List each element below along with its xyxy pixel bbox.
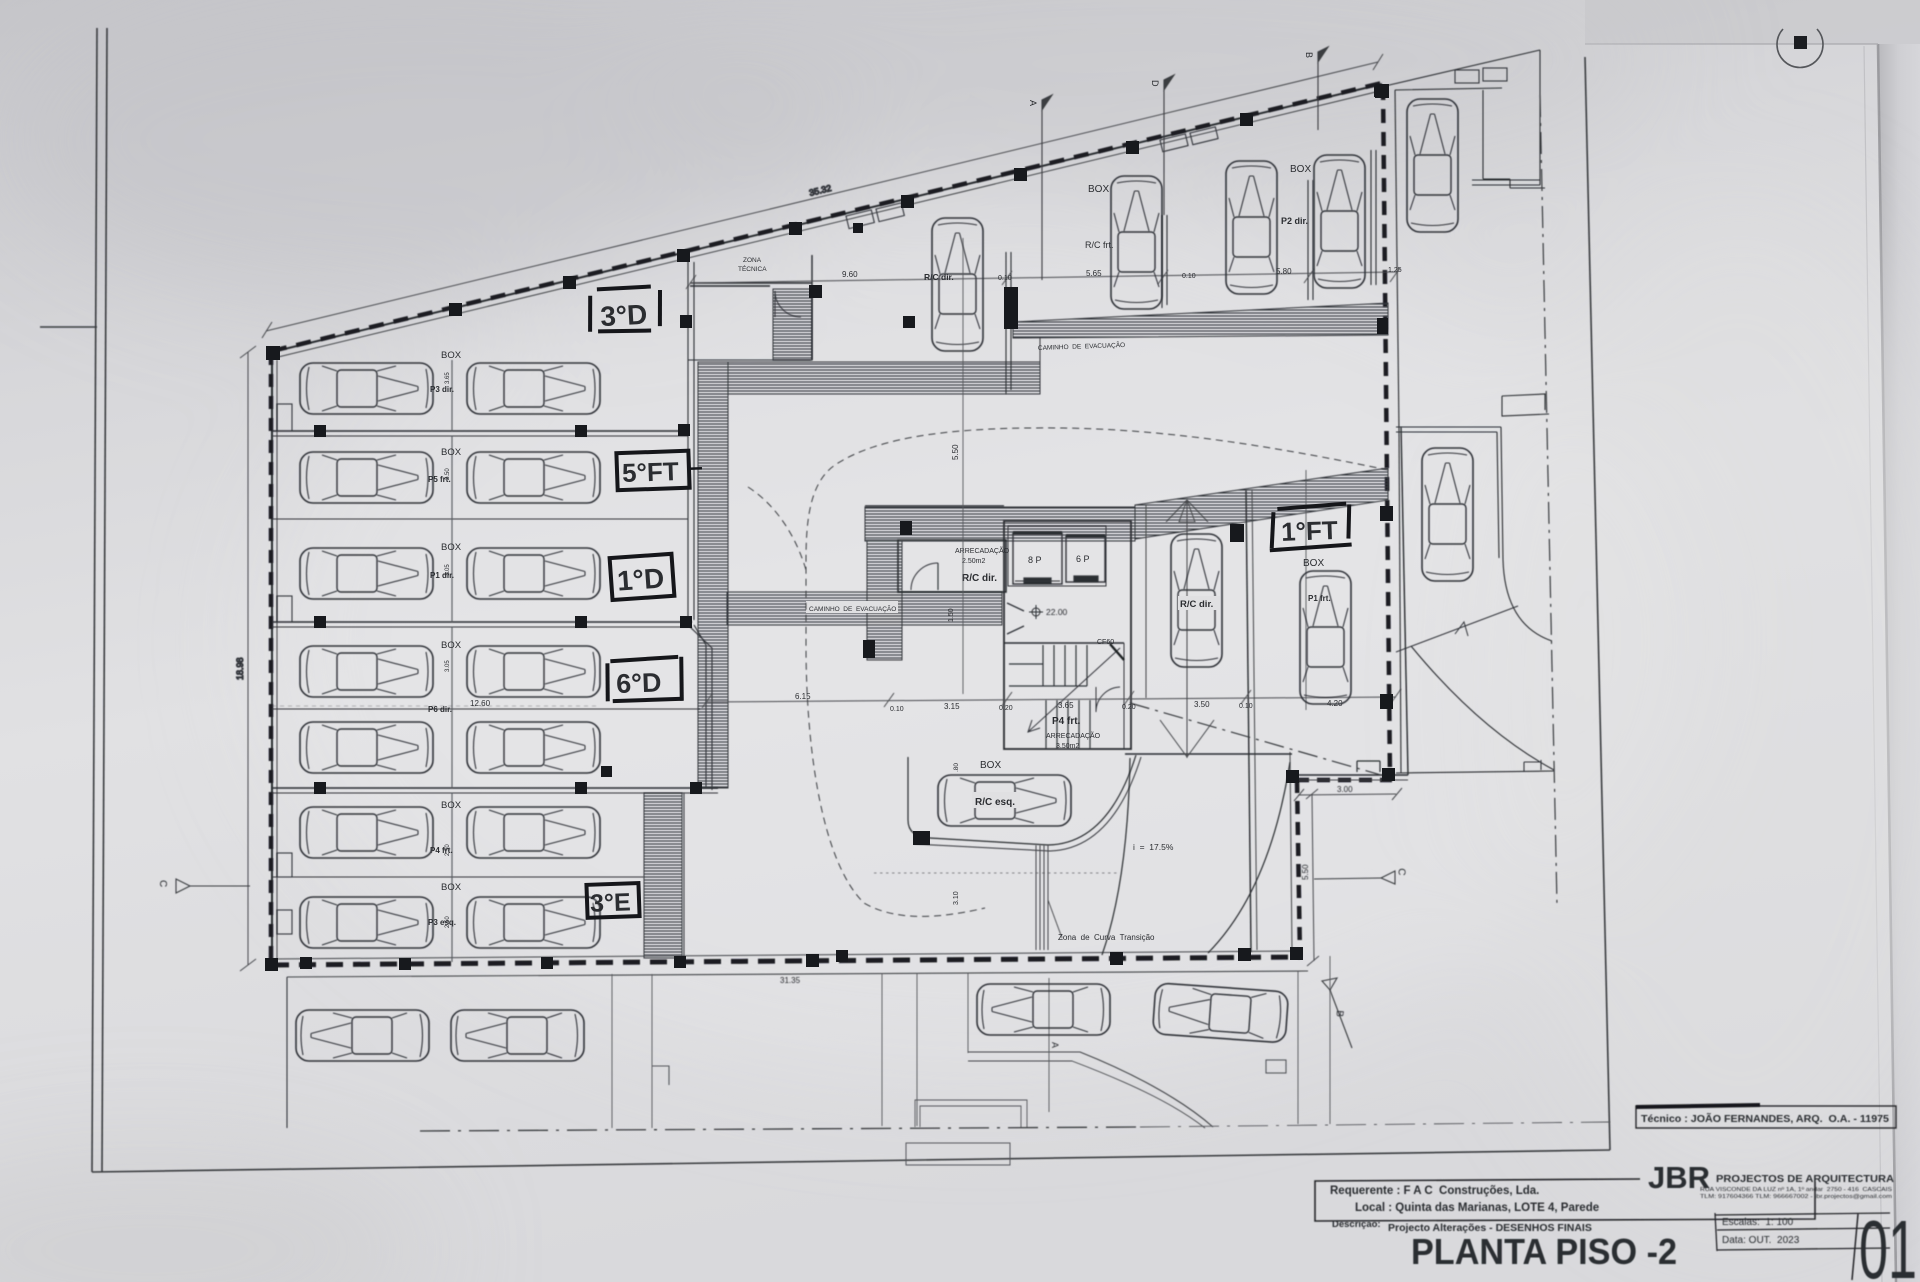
svg-text:5.65: 5.65 [1086,269,1102,278]
svg-text:2.50: 2.50 [445,916,451,928]
svg-text:3.50: 3.50 [1194,700,1210,709]
svg-text:3.15: 3.15 [944,702,960,711]
svg-text:B: B [1333,1010,1345,1018]
svg-text:PROJECTOS DE ARQUITECTURA: PROJECTOS DE ARQUITECTURA [1716,1174,1894,1185]
svg-text:R/C esq.: R/C esq. [975,797,1015,808]
svg-text:B: B [1304,52,1314,58]
svg-text:D: D [1150,80,1160,87]
svg-text:BOX: BOX [441,800,462,811]
svg-text:C: C [157,880,168,887]
svg-text:C: C [1395,868,1407,876]
svg-text:BOX: BOX [441,882,462,893]
svg-text:TÉCNICA: TÉCNICA [738,264,767,273]
svg-text:BOX: BOX [980,760,1001,771]
svg-text:P4 frt.: P4 frt. [1052,716,1081,727]
svg-text:R/C dir.: R/C dir. [962,573,997,584]
svg-text:5.80: 5.80 [1276,267,1292,276]
svg-text:3.00: 3.00 [1337,785,1353,794]
svg-text:6 P: 6 P [1076,554,1090,564]
svg-text:A: A [1028,100,1038,106]
svg-text:12.60: 12.60 [470,699,491,708]
svg-text:P1 frt.: P1 frt. [1308,594,1331,603]
svg-text:ZONA: ZONA [743,257,762,264]
svg-text:R/C dir.: R/C dir. [1180,599,1213,610]
svg-text:BOX: BOX [441,447,462,458]
svg-text:3.05: 3.05 [445,660,451,672]
svg-text:1.25: 1.25 [1388,267,1402,274]
svg-text:3°D: 3°D [600,299,649,332]
svg-text:Zona de Curva Transição: Zona de Curva Transição [1058,933,1155,942]
svg-text:0.20: 0.20 [999,705,1013,712]
svg-text:BOX: BOX [441,542,462,553]
svg-text:0.10: 0.10 [890,706,904,713]
svg-text:0.10: 0.10 [1182,273,1196,280]
svg-text:3.10: 3.10 [953,891,960,905]
svg-text:8 P: 8 P [1028,555,1042,565]
svg-text:BOX: BOX [1303,558,1324,569]
svg-text:.80: .80 [953,763,960,772]
svg-text:Data: OUT. 2023: Data: OUT. 2023 [1722,1235,1800,1246]
svg-text:PLANTA PISO -2: PLANTA PISO -2 [1411,1231,1677,1272]
svg-text:5°FT: 5°FT [622,456,680,488]
svg-text:18.98: 18.98 [235,657,245,680]
svg-text:Descrição:: Descrição: [1332,1219,1381,1230]
svg-text:CAMINHO DE EVACUAÇÃO: CAMINHO DE EVACUAÇÃO [809,604,896,613]
svg-text:1.50: 1.50 [948,608,955,622]
svg-text:Escalas: 1: 100: Escalas: 1: 100 [1722,1217,1794,1228]
svg-text:5.50: 5.50 [951,444,960,460]
svg-text:3.05: 3.05 [445,564,451,576]
svg-text:31.35: 31.35 [780,976,801,985]
svg-text:2.50: 2.50 [445,468,451,480]
svg-text:5.50: 5.50 [1301,864,1310,880]
svg-text:6.15: 6.15 [795,692,811,701]
svg-text:0.20: 0.20 [1122,704,1136,711]
svg-text:A: A [1050,1042,1060,1048]
svg-text:RUA VISCONDE DA LUZ nº 1A, 1º: RUA VISCONDE DA LUZ nº 1A, 1º andar 2750… [1700,1186,1892,1193]
svg-text:BOX: BOX [1088,184,1109,195]
svg-text:9.60: 9.60 [842,270,858,279]
svg-text:22.00: 22.00 [1046,607,1068,617]
svg-text:Local : Quinta das Marianas, L: Local : Quinta das Marianas, LOTE 4, Par… [1355,1202,1599,1214]
svg-text:1°FT: 1°FT [1281,515,1339,547]
svg-text:Técnico : JOÃO FERNANDES, ARQ.: Técnico : JOÃO FERNANDES, ARQ. O.A. - 11… [1641,1112,1889,1125]
svg-text:i = 17.5%: i = 17.5% [1133,842,1174,852]
svg-text:ARRECADAÇÃO: ARRECADAÇÃO [1046,731,1101,740]
svg-text:0.10: 0.10 [998,275,1012,282]
svg-text:3.65: 3.65 [445,372,451,384]
svg-text:3.50m2: 3.50m2 [1056,743,1079,750]
svg-text:01: 01 [1859,1203,1917,1282]
svg-text:BOX: BOX [441,350,462,361]
svg-text:3°E: 3°E [590,888,632,917]
svg-text:BOX: BOX [1290,164,1311,175]
svg-text:Requerente : F A C Construçõe: Requerente : F A C Construções, Lda. [1330,1185,1539,1197]
svg-text:2.50m2: 2.50m2 [962,558,985,565]
svg-text:2.50: 2.50 [445,844,451,856]
svg-text:R/C frt.: R/C frt. [1085,240,1114,250]
svg-text:0.10: 0.10 [1239,703,1253,710]
svg-text:BOX: BOX [441,640,462,651]
svg-text:P2 dir.: P2 dir. [1281,216,1308,226]
svg-text:6°D: 6°D [616,667,662,699]
svg-text:3.65: 3.65 [1058,701,1074,710]
svg-text:1°D: 1°D [616,562,665,596]
svg-text:TLM: 917604366 TLM: 966667002: TLM: 917604366 TLM: 966667002 - jbr.proj… [1700,1194,1892,1200]
svg-text:CF60: CF60 [1097,639,1114,646]
